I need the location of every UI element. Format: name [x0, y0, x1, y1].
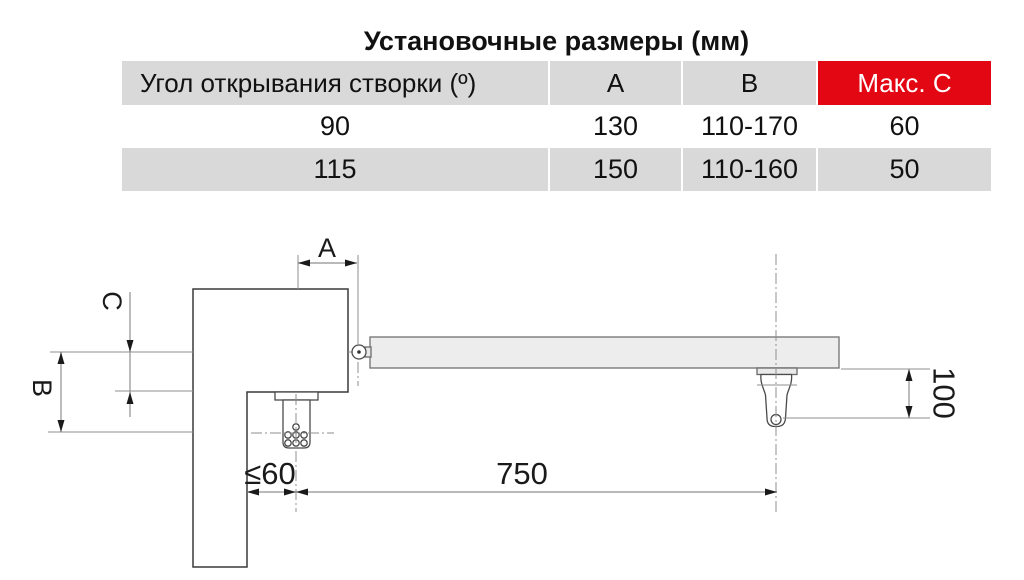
- page: Установочные размеры (мм) Угол открывани…: [0, 0, 1024, 580]
- pivot-hinge: [348, 345, 371, 386]
- dim-c-label: C: [97, 291, 127, 311]
- dim-b-label: B: [27, 379, 57, 397]
- dim-offset-label: ≤60: [244, 456, 296, 491]
- gate-post: [193, 289, 348, 567]
- dimension-c: C: [50, 291, 193, 417]
- rear-bracket: [251, 392, 334, 512]
- dim-drop-label: 100: [927, 367, 962, 419]
- dim-length-label: 750: [496, 456, 548, 491]
- dimension-offset-and-length: ≤60 750: [244, 456, 777, 496]
- gate-leaf: [370, 337, 839, 368]
- installation-drawing: A C B ≤60 750: [0, 0, 1024, 580]
- dimension-b: B: [27, 352, 193, 432]
- dim-a-label: A: [318, 233, 336, 263]
- dimension-bracket-drop: 100: [783, 367, 962, 419]
- front-bracket: [757, 254, 797, 515]
